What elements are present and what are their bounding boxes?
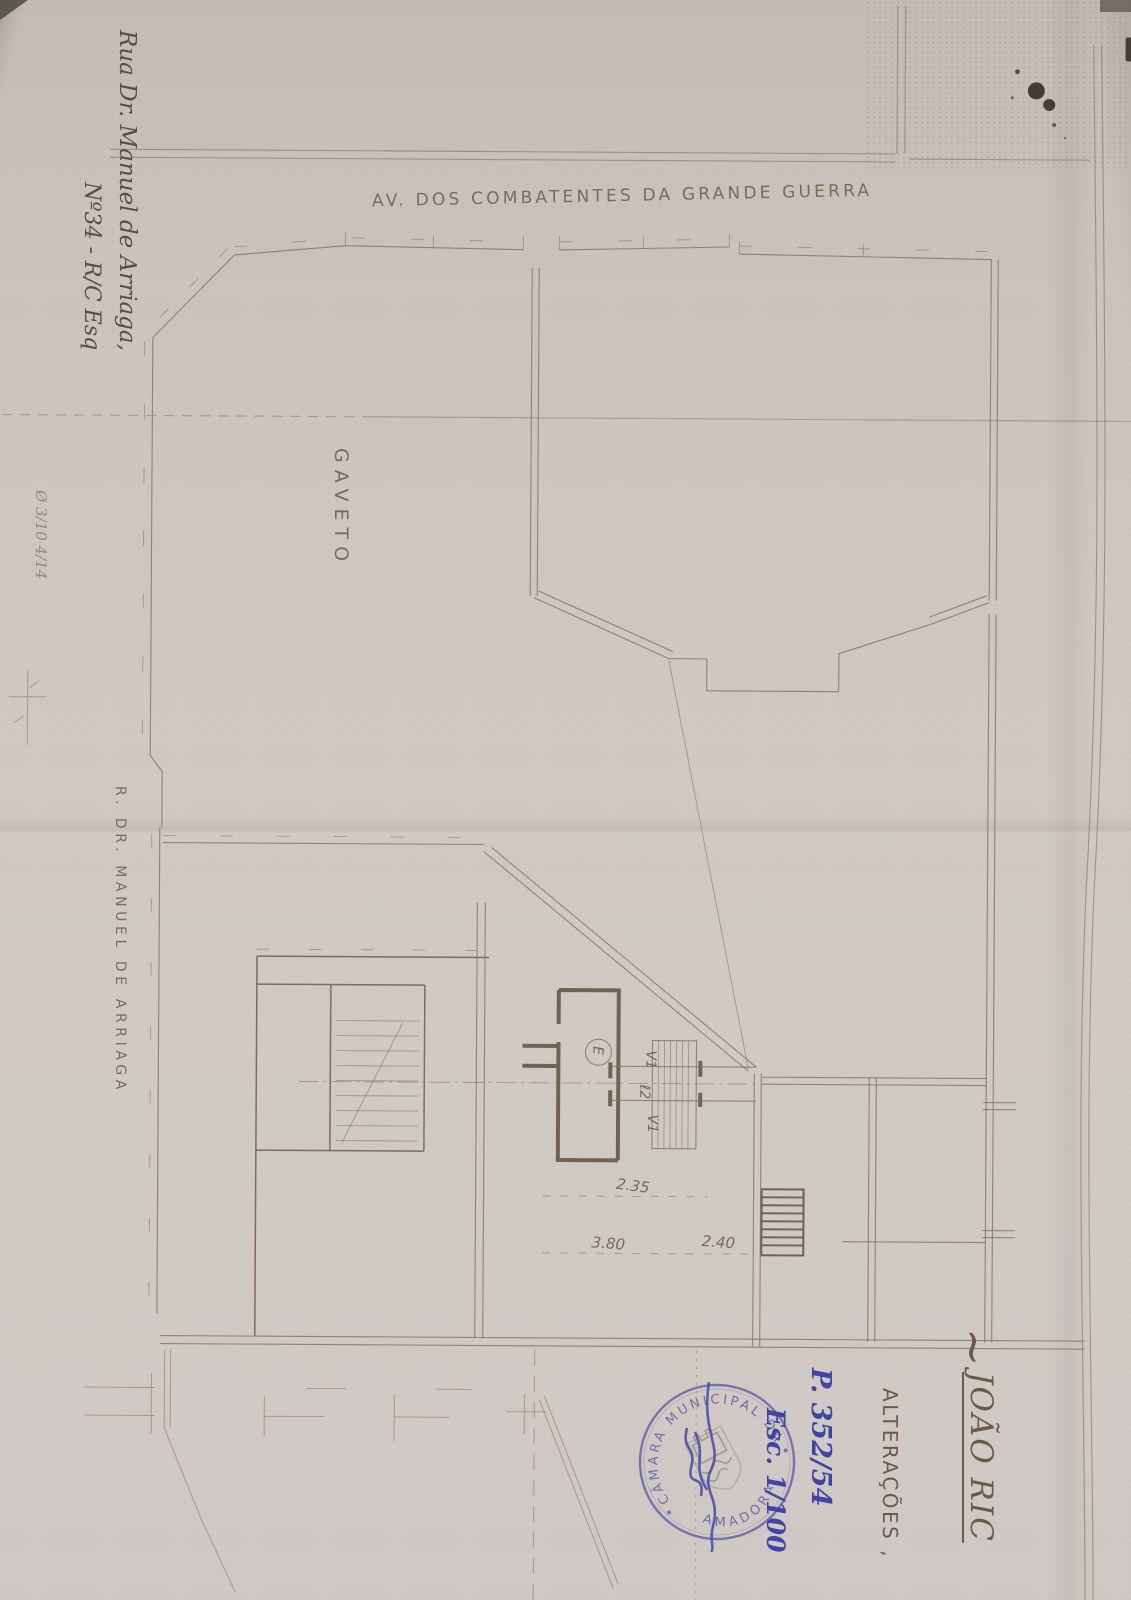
corner-label-gaveto: GAVETO [330, 448, 352, 568]
dim-2-35: 2.35 [615, 1175, 650, 1197]
title-owner-name: JOÃO RIC [963, 1372, 999, 1543]
dim-3-80: 3.80 [591, 1233, 626, 1253]
label-l2: ℓ2 [636, 1083, 652, 1099]
scanned-floor-plan-page: E V1 ℓ2 V1 2.35 3.80 2.40 [0, 0, 1131, 1600]
handwritten-address-line1: Rua Dr. Manuel de Arriaga, [114, 30, 140, 351]
ink-blots [1011, 37, 1131, 140]
facade-avenue [234, 231, 991, 260]
label-v1-bottom: V1 [644, 1114, 660, 1133]
stamp-dot-left [666, 1510, 671, 1515]
blue-note-process-number: P. 352/54 [805, 1368, 836, 1506]
label-v1-top: V1 [642, 1050, 658, 1069]
title-tilde-mark: ~ [947, 1328, 1001, 1367]
pencil-cross-mark [8, 671, 46, 745]
handwritten-address-line2: Nº34 - R/C Esq [79, 182, 104, 350]
service-core-bold [522, 990, 701, 1163]
street-label-left: R. DR. MANUEL DE ARRIAGA [112, 786, 128, 1094]
title-subtitle-alteracoes: ALTERAÇÕES , [878, 1388, 902, 1559]
pencil-edge-note: Ø 3/10 4/14 [32, 490, 50, 579]
party-wall-diagonals [161, 836, 757, 1072]
stamp-coat-of-arms [684, 1423, 749, 1497]
stair-bold-hatched [761, 1189, 803, 1255]
corner-chamfer [146, 248, 235, 338]
blue-note-scale: Esc. 1/100 [761, 1408, 790, 1552]
lower-stub-walls [83, 1347, 697, 1600]
dim-2-40: 2.40 [701, 1232, 736, 1252]
facade-left-street [139, 337, 165, 1313]
room-e-label: E [589, 1046, 605, 1055]
